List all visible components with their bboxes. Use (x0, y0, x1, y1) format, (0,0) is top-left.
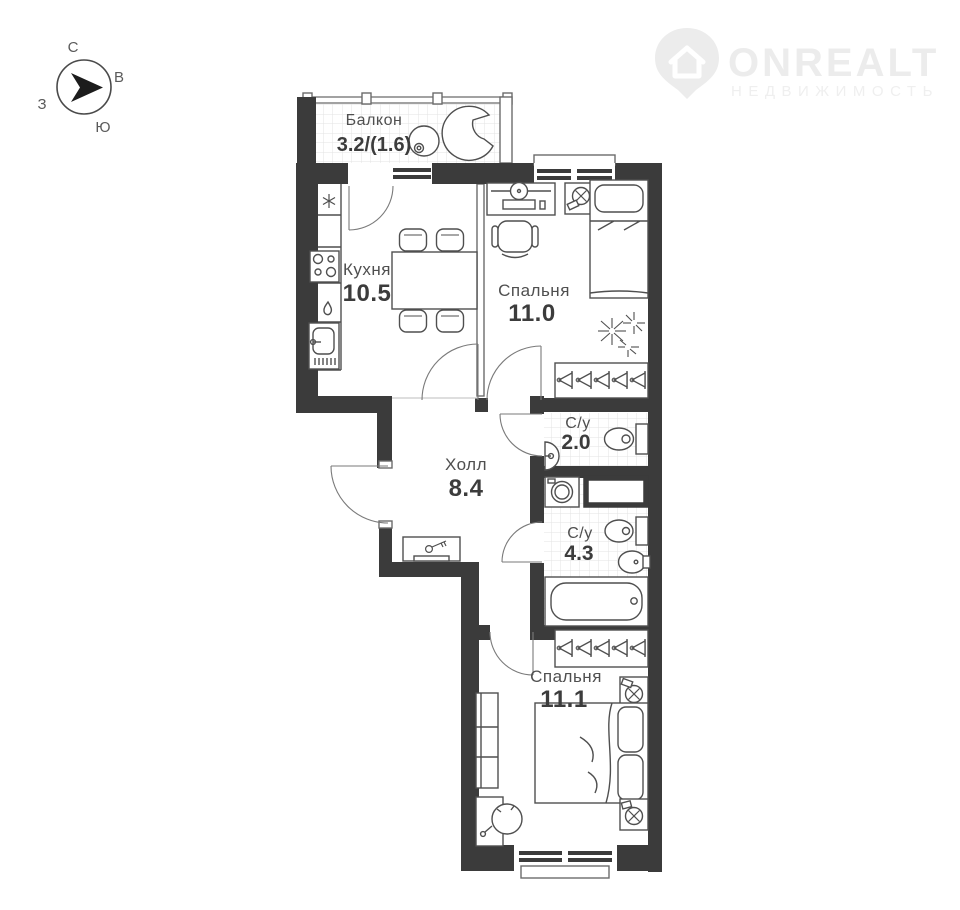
balcony-side-wall (500, 97, 512, 163)
compass: С В З Ю (37, 39, 124, 136)
logo-wordmark: ONREALT (728, 41, 939, 85)
double-bed-icon (535, 703, 648, 803)
bathroom1-label: С/у (565, 415, 591, 432)
bathroom1-area: 2.0 (561, 431, 590, 454)
hall-label: Холл (445, 455, 487, 474)
bathroom2-area: 4.3 (564, 542, 593, 565)
nightstand-icon (620, 799, 648, 830)
tall-cabinet-icon (476, 693, 498, 788)
kitchen-balcony-window (392, 163, 432, 184)
toilet-icon (605, 517, 648, 545)
floor-plan-canvas: С В З Ю ONREALT НЕДВИЖИМОСТЬ (0, 0, 960, 910)
vanity-stool-icon (476, 797, 522, 846)
nightstand-icon (620, 677, 648, 706)
bedroom2-label: Спальня (530, 667, 602, 686)
wardrobe-icon (555, 363, 648, 398)
wardrobe-icon (555, 630, 648, 667)
bathroom2-label: С/у (567, 525, 593, 542)
compass-east-label: В (114, 69, 124, 86)
ventilation-shaft (586, 478, 646, 505)
dining-table (392, 229, 477, 332)
bedroom1-label: Спальня (498, 281, 570, 300)
balcony-door (349, 186, 393, 230)
kitchen-label: Кухня (343, 260, 391, 279)
bedroom1-area: 11.0 (508, 300, 555, 327)
compass-west-label: З (37, 96, 46, 113)
bedroom2-window (514, 845, 617, 878)
plant-icon (598, 312, 645, 357)
stove-icon (310, 251, 339, 282)
washing-machine-icon (545, 477, 579, 507)
balcony-area: 3.2/(1.6) (337, 134, 411, 156)
compass-arrow-icon (71, 73, 103, 102)
fridge-snowflake-icon (323, 194, 335, 208)
desk-icon (487, 183, 555, 216)
water-drop-icon (324, 302, 331, 315)
washing-machine-icon (409, 126, 439, 156)
kitchen-furniture (309, 184, 477, 370)
bedroom2-area: 11.1 (540, 686, 587, 713)
onrealt-logo: ONREALT НЕДВИЖИМОСТЬ (655, 28, 939, 100)
floorplan-page: С В З Ю ONREALT НЕДВИЖИМОСТЬ (0, 0, 960, 910)
kitchen-sink-icon (309, 323, 339, 369)
bedroom2-door (490, 632, 533, 675)
entrance-door (331, 466, 388, 523)
compass-north-label: С (68, 39, 79, 56)
bathroom1-door (500, 414, 542, 456)
single-bed-icon (590, 180, 648, 298)
compass-south-label: Ю (95, 119, 110, 136)
balcony-label: Балкон (346, 112, 403, 129)
bedroom1-door (487, 346, 541, 400)
kitchen-door (392, 344, 478, 400)
logo-subtitle: НЕДВИЖИМОСТЬ (731, 83, 939, 100)
bathroom2-door (502, 522, 542, 562)
bathtub-icon (545, 577, 648, 626)
hall-area: 8.4 (449, 475, 484, 502)
entry-bench-icon (403, 537, 460, 561)
logo-pin-icon (655, 28, 719, 99)
kitchen-area: 10.5 (343, 280, 392, 307)
hall-furniture (403, 537, 460, 561)
bedroom2-furniture (476, 630, 648, 846)
office-chair-icon (492, 221, 538, 258)
